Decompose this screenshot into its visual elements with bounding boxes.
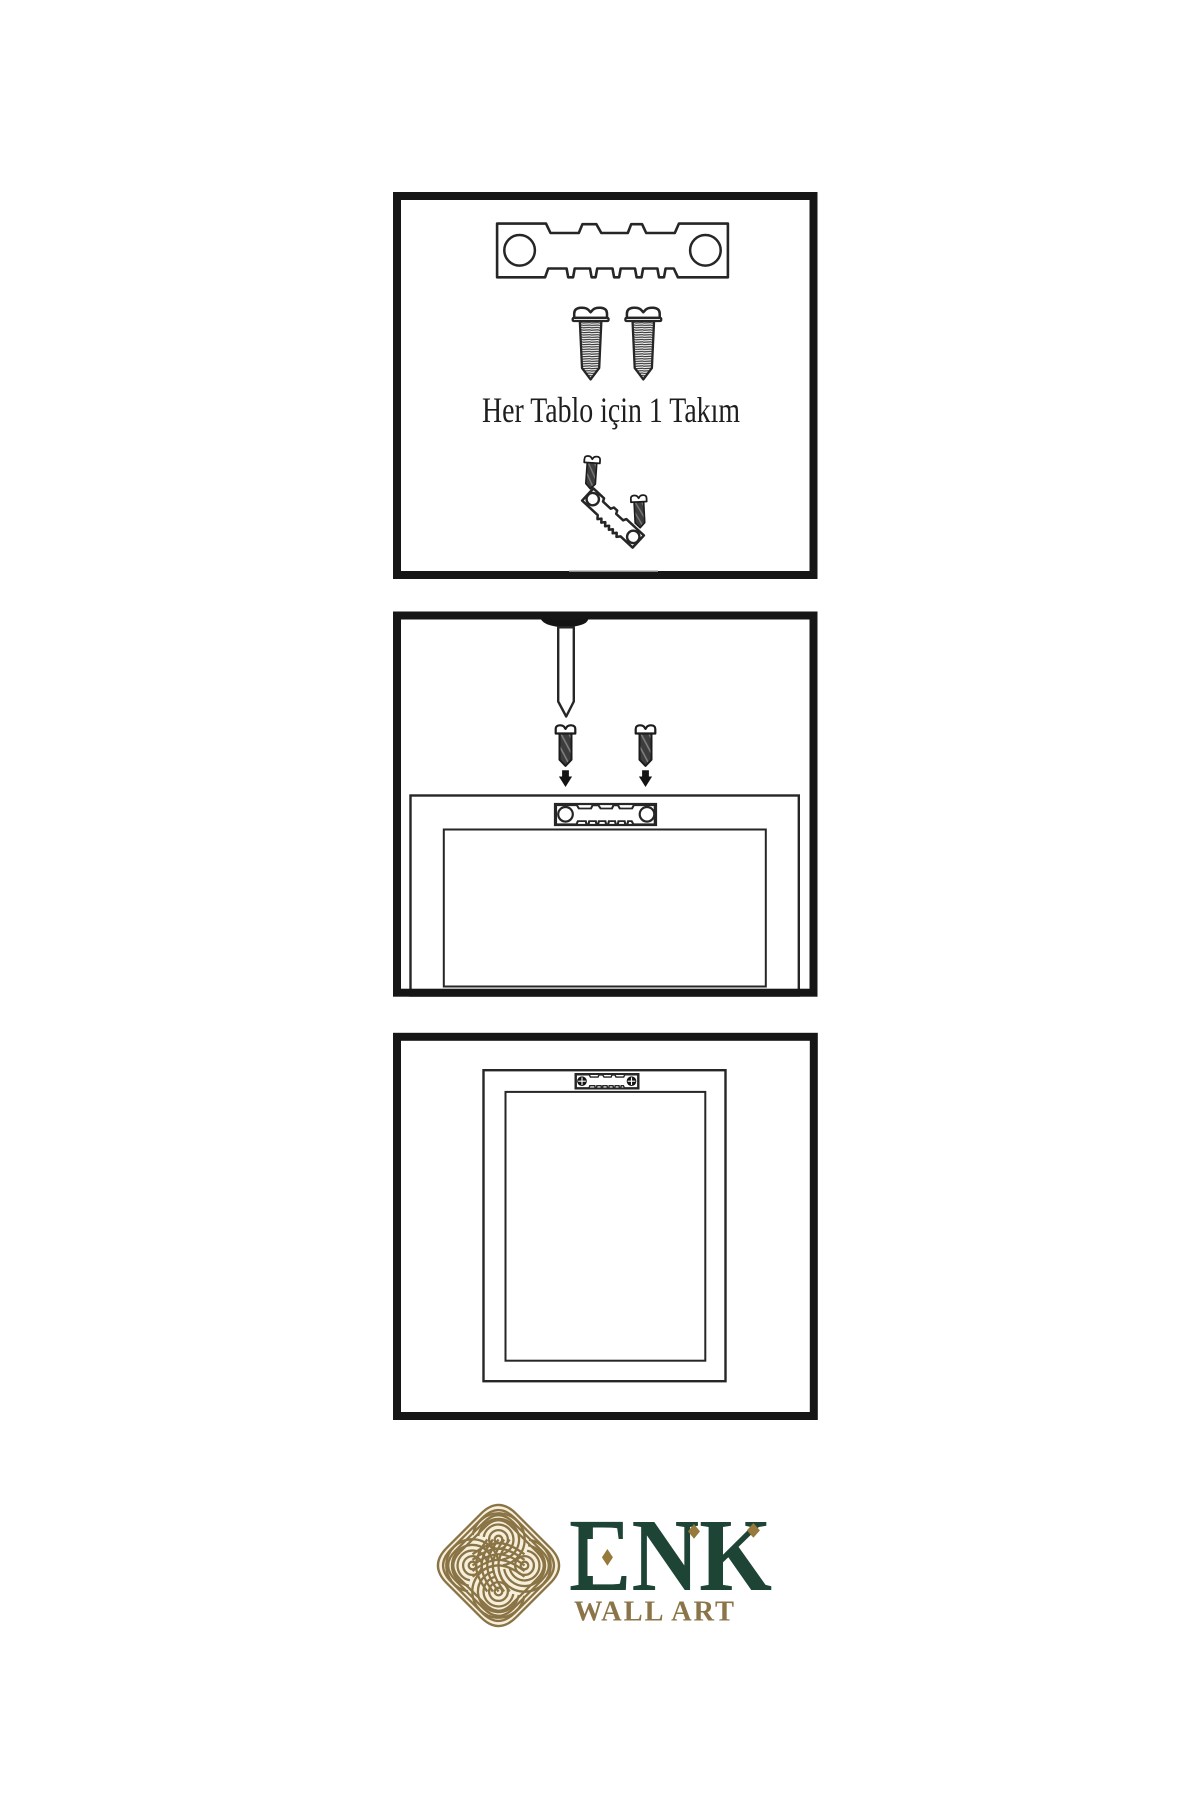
- svg-text:WALL ART: WALL ART: [574, 1597, 734, 1628]
- svg-text:Her Tablo için 1 Takım: Her Tablo için 1 Takım: [482, 390, 740, 430]
